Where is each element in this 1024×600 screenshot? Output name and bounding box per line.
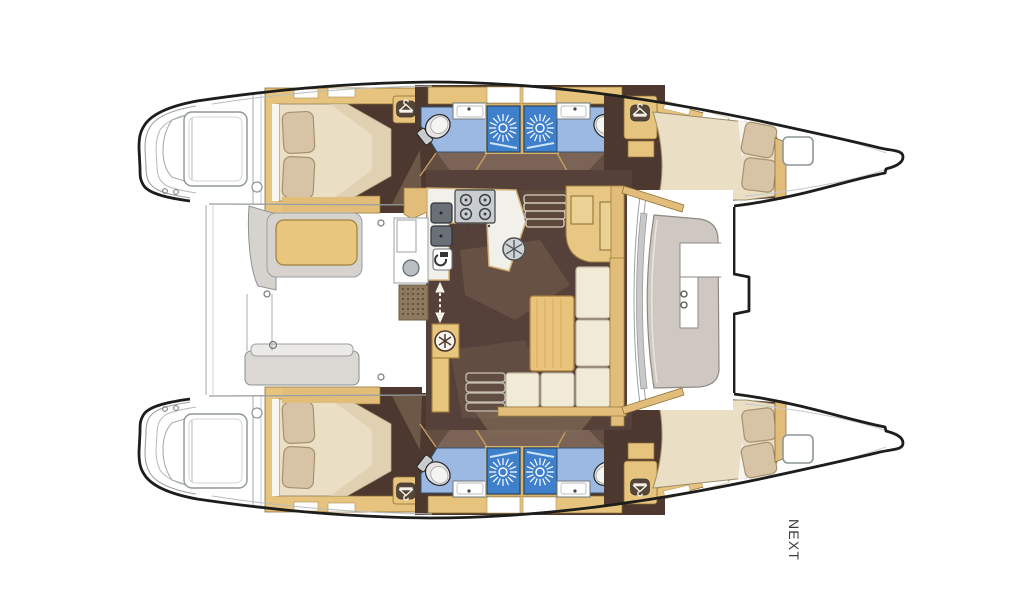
svg-text:NEXT: NEXT: [786, 519, 802, 561]
